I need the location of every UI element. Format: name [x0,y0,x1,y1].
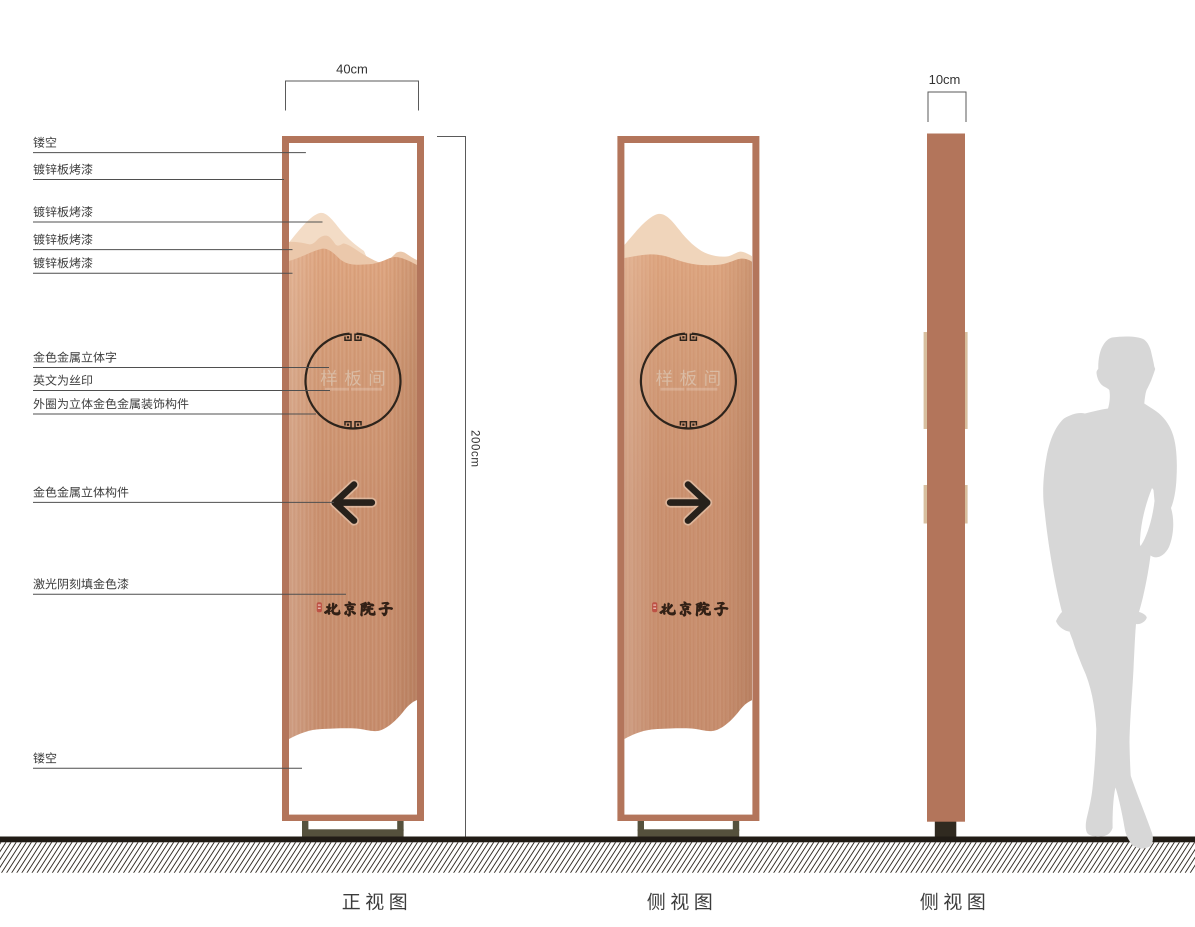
svg-text:10cm: 10cm [929,72,961,87]
svg-text:40cm: 40cm [336,61,368,76]
svg-text:200cm: 200cm [468,430,480,468]
